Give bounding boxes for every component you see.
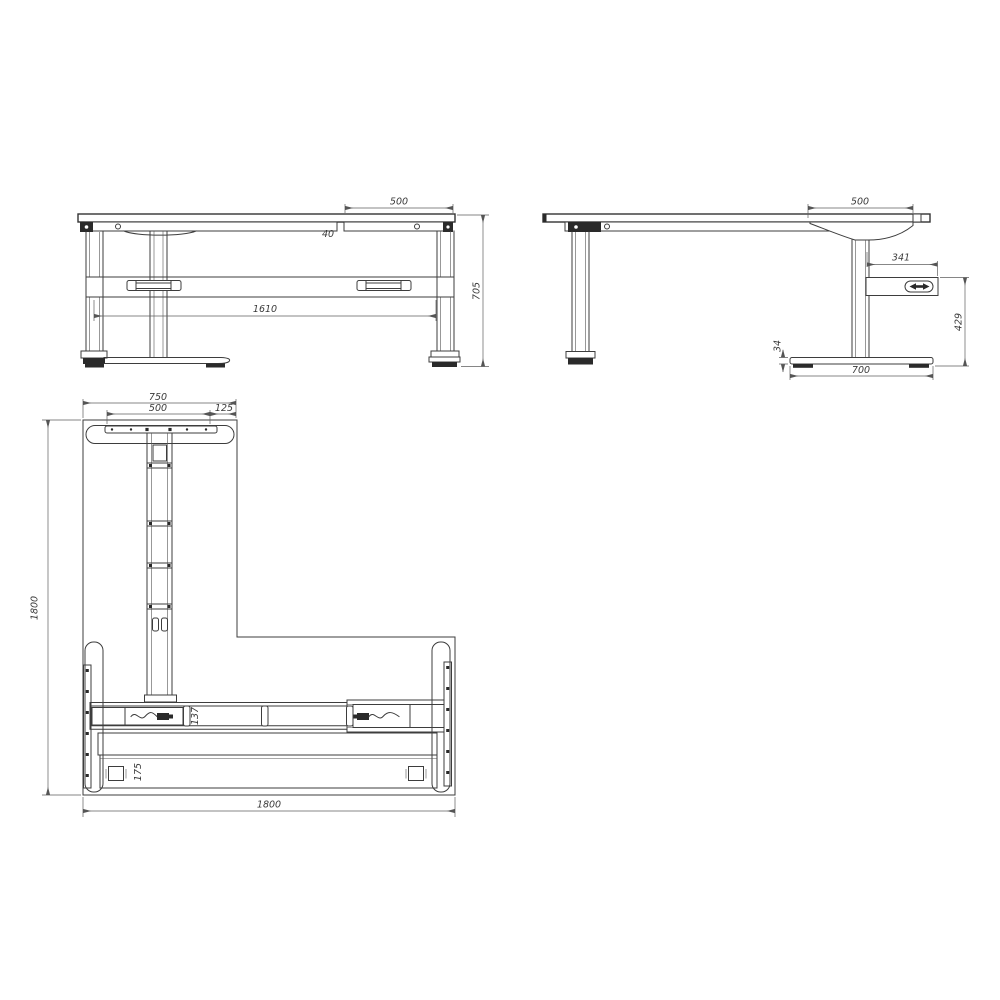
front-dim-leg-spacing-label: 1610 xyxy=(253,304,277,315)
plan-dim-edge-margin: 125 xyxy=(210,403,236,414)
front-dim-leg-spacing: 1610 xyxy=(94,300,436,321)
technical-drawing-page: 500 40 1610 705 xyxy=(0,0,1000,1000)
plan-column-divider xyxy=(147,521,172,526)
plan-dim-edge-margin-label: 125 xyxy=(215,403,233,414)
plan-column-divider xyxy=(147,563,172,568)
side-dim-overhang-label: 500 xyxy=(851,197,869,208)
front-middle-leg xyxy=(150,231,167,357)
plan-dim-arm-depth: 1800 xyxy=(30,420,82,795)
side-tabletop-end-cap xyxy=(913,214,921,222)
side-dim-foot-height-label: 34 xyxy=(773,340,784,352)
plan-view: 137 175 750 500 125 1800 1800 xyxy=(30,392,456,817)
side-tabletop-left-tick xyxy=(543,214,547,222)
plan-dim-arm-width-label: 750 xyxy=(149,392,167,403)
plan-beam-end-box xyxy=(92,708,125,726)
front-dim-height-label: 705 xyxy=(472,282,483,300)
plan-dim-overall-width-label: 1800 xyxy=(257,800,281,811)
plan-column-divider xyxy=(147,463,172,468)
technical-drawing-canvas: 500 40 1610 705 xyxy=(0,0,1000,1000)
side-dim-controller-to-floor: 429 xyxy=(935,278,969,367)
side-dim-controller-to-floor-label: 429 xyxy=(954,313,965,331)
side-right-leg xyxy=(852,240,869,357)
plan-tabletop-outline xyxy=(83,420,455,795)
plan-cable-clip xyxy=(162,618,168,631)
front-left-leg xyxy=(81,232,107,364)
front-dim-rail-gap-label: 40 xyxy=(322,229,334,240)
side-left-bracket-hole xyxy=(574,225,578,229)
plan-top-plate xyxy=(105,426,217,433)
front-middle-leg-mount xyxy=(124,231,196,235)
plan-beam-connector xyxy=(262,706,269,726)
front-return-foot xyxy=(85,358,230,368)
plan-beam-end-box xyxy=(410,705,444,728)
plan-dim-overall-width: 1800 xyxy=(83,797,455,817)
side-dim-controller-length: 341 xyxy=(867,252,938,276)
plan-dim-beam-width-label: 137 xyxy=(190,707,201,725)
front-right-leg xyxy=(429,231,460,367)
plan-cable-box-left xyxy=(125,708,183,726)
front-dim-height: 705 xyxy=(457,215,489,367)
side-left-leg xyxy=(566,232,595,365)
plan-dim-plate-length: 500 xyxy=(107,403,210,424)
front-left-bracket-hole xyxy=(85,225,89,229)
tray-clip xyxy=(106,767,126,781)
plan-column-base xyxy=(145,695,177,702)
front-crossbar xyxy=(86,277,454,297)
front-tabletop xyxy=(78,214,455,222)
front-right-rail xyxy=(344,222,452,231)
side-dim-foot-length-label: 700 xyxy=(852,365,870,376)
plan-dim-arm-depth-label: 1800 xyxy=(30,596,41,620)
front-left-rail xyxy=(85,222,337,231)
side-controller-box xyxy=(866,278,938,296)
plan-column-divider xyxy=(147,604,172,609)
plan-dim-plate-length-label: 500 xyxy=(149,403,167,414)
front-view: 500 40 1610 705 xyxy=(78,197,489,368)
side-view: 500 341 429 34 700 xyxy=(543,197,969,381)
front-dim-overhang-label: 500 xyxy=(390,197,408,208)
plan-leg-column xyxy=(145,433,177,702)
side-dim-controller-length-label: 341 xyxy=(892,253,910,264)
plan-cable-clip xyxy=(153,618,159,631)
side-rail xyxy=(565,222,850,231)
plan-cable-tray xyxy=(98,733,437,788)
side-dim-foot-height: 34 xyxy=(773,340,789,372)
side-tabletop xyxy=(543,214,930,222)
plan-main-beam xyxy=(90,700,444,732)
plan-dim-tray-width-label: 175 xyxy=(133,763,144,781)
front-dim-overhang: 500 xyxy=(345,197,453,214)
front-right-bracket-hole xyxy=(446,225,449,228)
plan-beam-connector xyxy=(347,706,354,726)
side-left-bracket xyxy=(568,222,601,232)
plug-right-icon xyxy=(357,713,369,720)
tray-clip xyxy=(406,767,426,781)
plug-left-icon xyxy=(157,713,169,720)
